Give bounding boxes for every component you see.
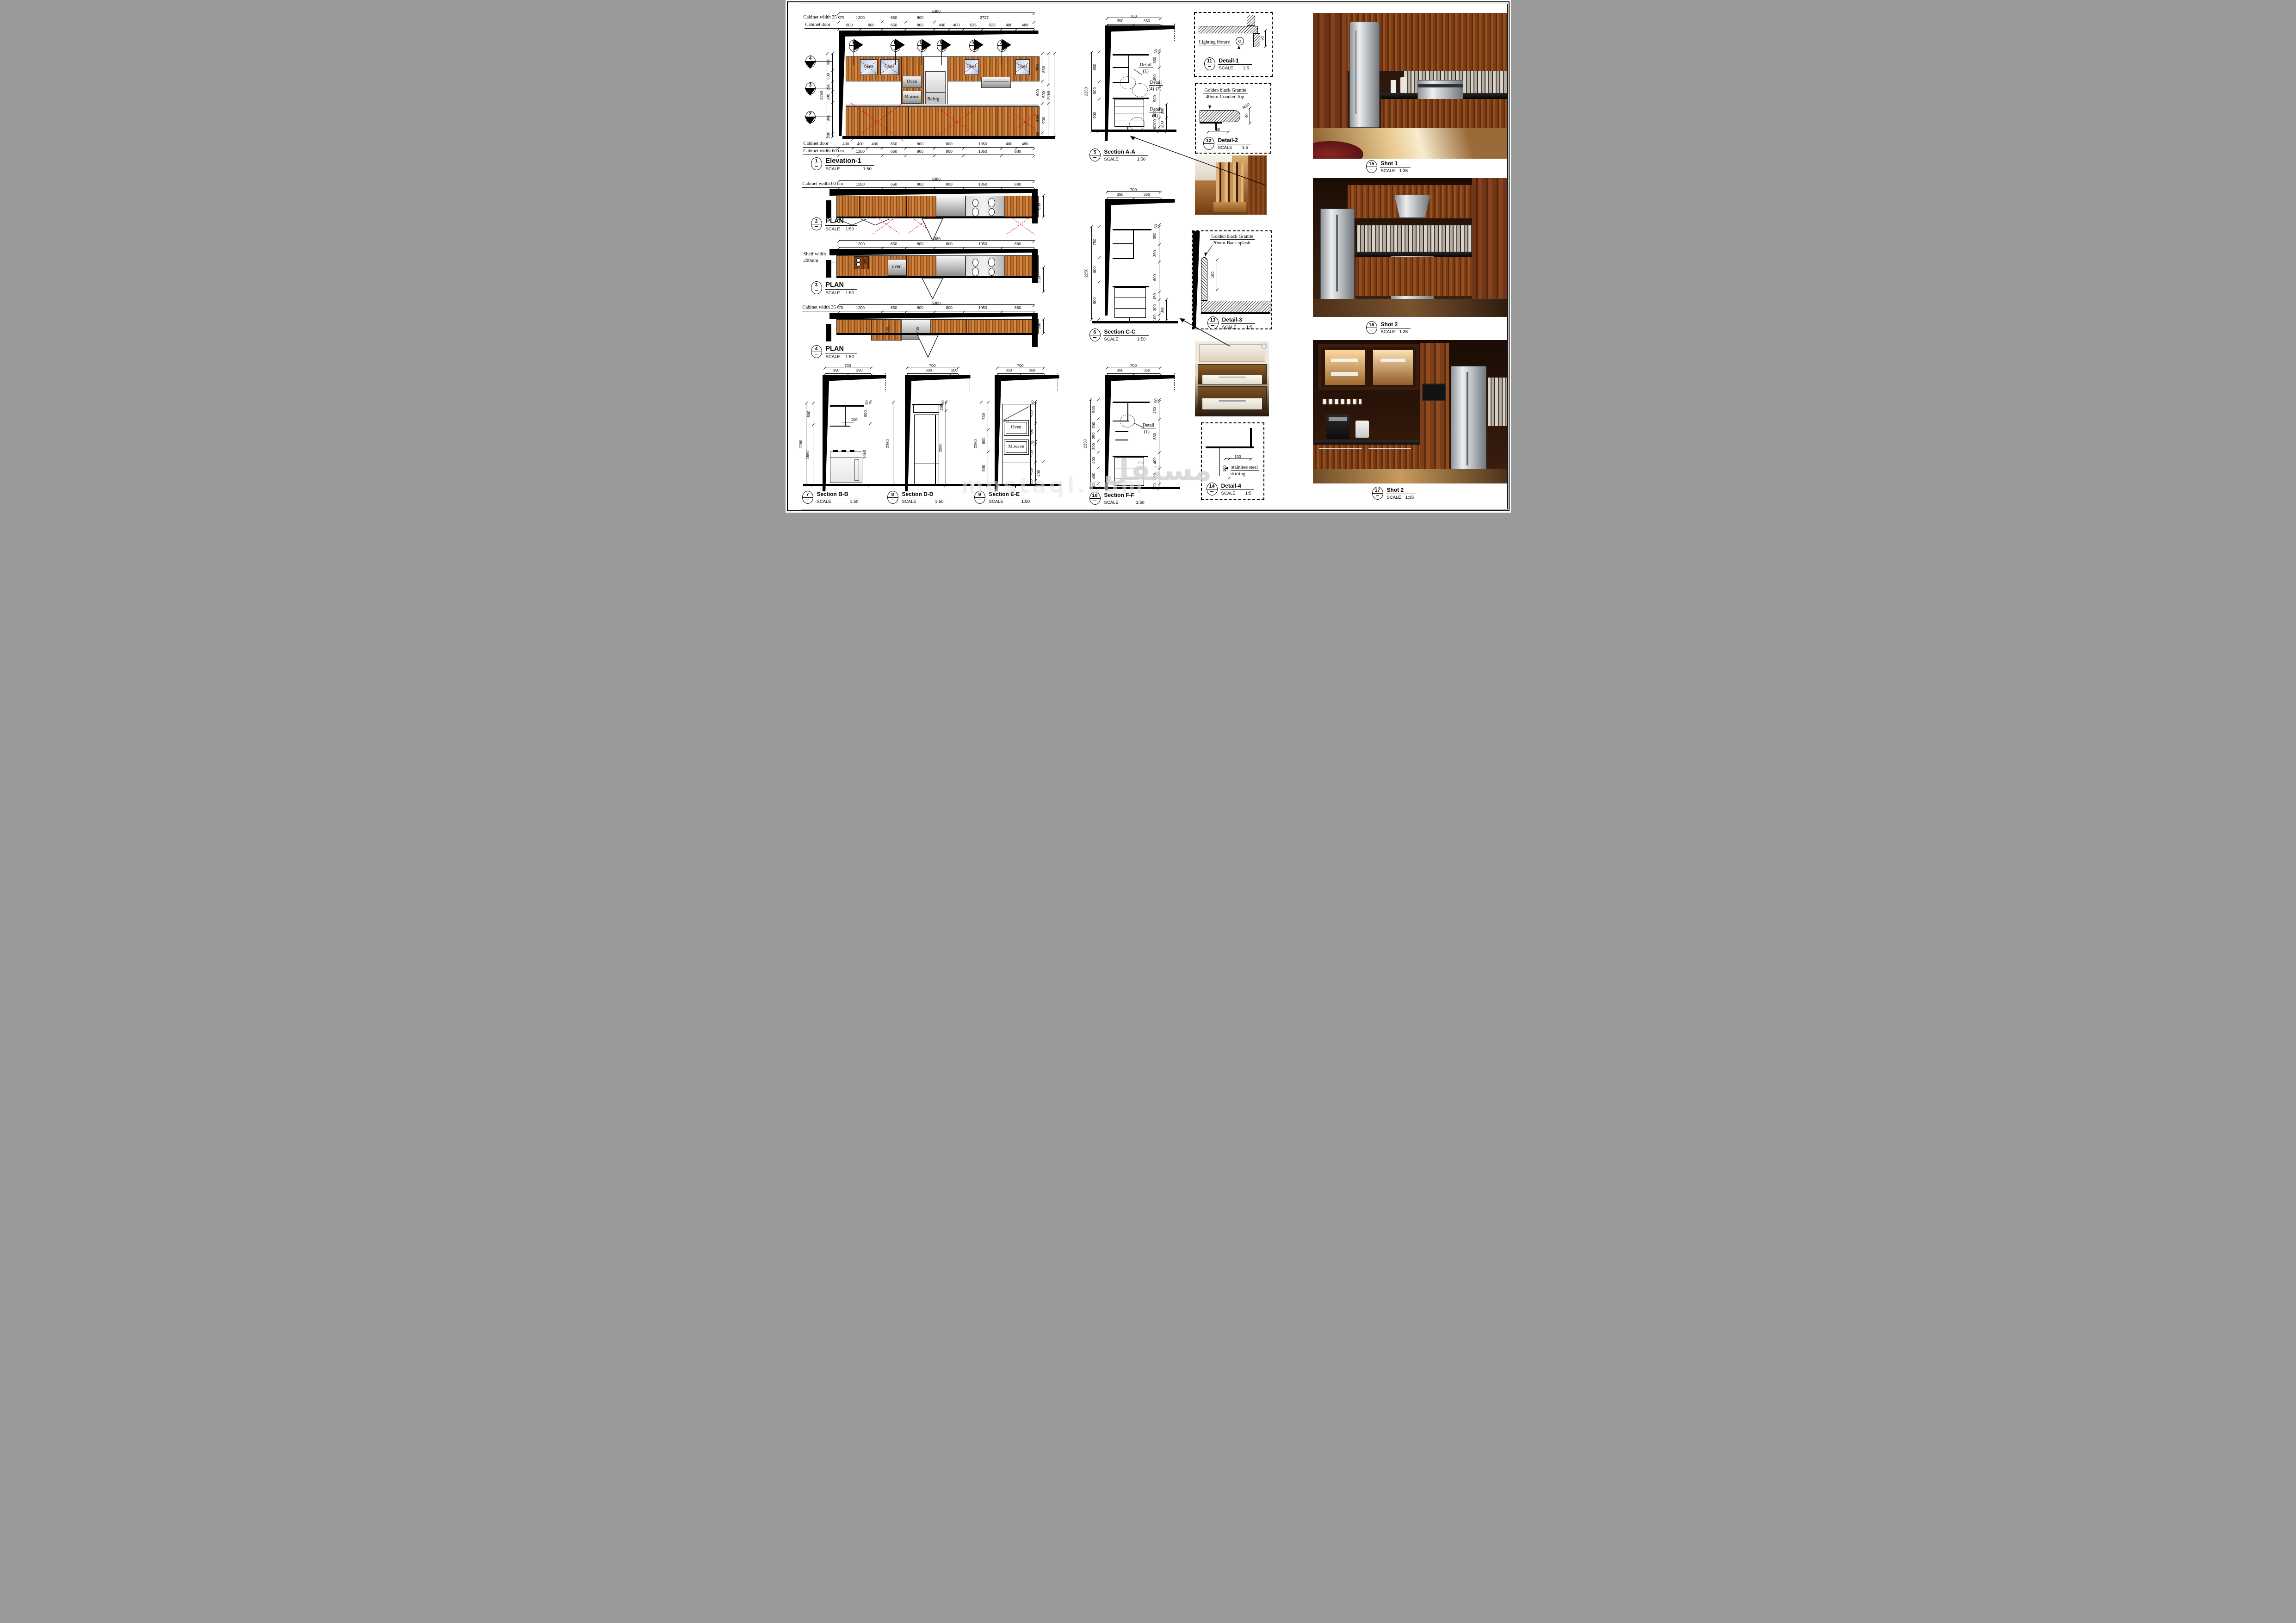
plan2-fridge [936,196,965,217]
floor [1313,469,1507,483]
shot3-title: 17 Shot 2 SCALE1:35 [1372,487,1417,500]
plan2-title: 2 PLAN SCALE1:50 [811,217,857,232]
detail-2: Golden black Granite 40mm-Counter Top R1… [1195,83,1271,154]
dim-value: 350 [1021,367,1044,374]
plan3-right-dim: 338 [1043,267,1044,291]
dim-value: 850 [1099,52,1099,82]
CC-upper-post [1133,230,1134,259]
DD-floor [887,484,972,486]
drawing-title: Elevation-1 [825,157,874,166]
dim-value: 300 [1159,300,1159,316]
CC-title: 6 Section C-C SCALE1:50 [1089,328,1149,342]
bottom-width-label: Cabinet width 60 cm [803,149,839,155]
CC-upper-shelf [1113,229,1151,230]
floor [1313,299,1507,317]
base-cabinets [1355,257,1472,296]
AA-callout1: Detail [1139,62,1153,68]
appliance-tower [1420,343,1449,477]
glass-upper-cabinet [1318,344,1419,390]
elevation-overall-dim: 5380 [839,6,1034,13]
dim-value: 100 [1159,315,1159,320]
dim-value: 650 [882,22,906,29]
dim-value: 800 [906,149,935,155]
base-cabinets [1381,99,1507,130]
dim-value: 650 [882,141,906,148]
dim-value: 400 [1098,468,1098,484]
dim-value: 300 [832,71,833,82]
dim-value: 500 [1159,87,1159,109]
dim-value: 400 [934,22,949,29]
dim-value: 400 [1035,462,1036,480]
title-marker: 12 [1203,137,1214,150]
kettle [1355,421,1369,438]
glass-door-1: Glass [860,59,878,75]
D2-annotation-2: 40mm-Counter Top [1206,94,1244,99]
BB-upper-post [845,406,846,426]
glass-door-2: Glass [880,59,899,75]
plan4-overall-dim: 5380 [839,298,1034,305]
marker-flag-icon [805,61,816,69]
D3-leader [1206,245,1212,254]
section-CC: 700 350350 2250 750600900 50350350600150… [1084,185,1181,345]
title-marker: 4 [811,345,822,358]
dim-value: 250 [832,82,833,91]
EE-wall [995,375,1002,491]
section-marker: C [937,40,947,52]
coffee-machine [1326,415,1349,439]
title-marker: 3 [811,281,822,294]
plan3-shelf: 200 [854,256,869,269]
dim-value: 400 [1035,444,1036,462]
dim-value: 800 [934,181,964,188]
CC-top-dims: 350350 [1107,192,1160,198]
level-marker: 4 [805,56,816,68]
AA-top-total: 700 [1107,12,1160,18]
AA-title: 5 Section A-A SCALE1:50 [1089,149,1149,162]
photo-open-drawer-2 [1198,386,1267,410]
dim-value: 800 [906,305,935,311]
plan2-cooktop [965,196,1005,217]
DD-top-dims: 600100 [907,367,958,374]
FF-top-dims: 350350 [1107,367,1160,374]
dim-value: 100 [1035,480,1036,485]
dim-value: 400 [1002,22,1016,29]
plan4-wall-return [826,324,831,341]
dim-value: 500 [1098,400,1098,419]
dim-value: 800 [906,15,935,21]
dim-value: 1050 [964,305,1002,311]
close-icon[interactable] [1261,343,1267,349]
dim-value: 600 [988,430,988,452]
AA-upper-shelf [1113,54,1149,56]
DD-wall [905,375,912,491]
photo-drawer-front [1213,202,1246,212]
drawing-sheet: 5380 Cabinet width 35 cm 12006508002727 … [786,0,1511,513]
dim-value: 400 [1002,141,1016,148]
AA-shelf [1113,67,1129,68]
plan-3: 5380 12006508008001050880 Shelf width 20… [802,230,1047,298]
D1-beam [1247,15,1255,26]
ceiling-wall [839,31,1039,37]
shot3-photo [1313,340,1507,483]
BB-shelf [830,426,850,427]
drawing-title: PLAN [825,217,857,226]
section-BB: 700 350350 100 2250 6001650 505501650 7 … [799,361,887,507]
D4-title: 14 Detail-4 SCALE1:5 [1207,483,1254,496]
shot2-photo [1313,178,1507,317]
plan4-fridge: 600 [901,319,931,340]
D3-backsplash [1201,257,1207,301]
section-DD: 700 600100 2250 502002000 8 Section D-D … [886,361,972,507]
plan4-cabinet-run [836,319,1039,334]
plan4-door-swing [973,335,1000,347]
base-x-mark [1014,109,1038,135]
dim-value: 650 [882,241,906,248]
microwave-front: M.wave [903,91,922,104]
dim-value: 1050 [964,149,1002,155]
backsplash [1488,378,1507,426]
CC-base-cabinet [1114,287,1146,318]
FF-shelf [1115,431,1128,432]
drawing-title: Detail-2 [1217,137,1251,144]
D4-annotation-2: skirting [1231,471,1245,477]
section-EE: 700 350350 Oven M.wave 2250 750600900 50… [974,361,1060,507]
dim-value: 550 [870,403,870,424]
dim-value: 800 [906,22,935,29]
dim-value: 1200 [839,305,882,311]
AA-top-dims: 350350 [1107,18,1160,25]
mugs-row [1323,399,1362,404]
bottom-door-label: Cabinet door [803,141,839,148]
EE-grid-line [1058,373,1058,390]
CC-shelf [1113,258,1134,259]
title-marker: 13 [1207,316,1219,329]
D3-counter [1201,301,1270,313]
CC-top-total: 700 [1107,185,1160,192]
dim-value: 350 [1107,367,1134,374]
plan2-width-dims: 12006508008001050880 [839,181,1034,188]
floor-line [842,136,1055,139]
dim-value: 800 [934,149,964,155]
FF-ceiling [1105,375,1175,381]
D2-annotation-1: Golden black Granite [1203,88,1248,93]
CC-leg [1129,318,1131,321]
dim-value: 850 [1159,420,1159,453]
plan3-overall-dim: 5380 [839,234,1034,241]
title-marker: 14 [1207,483,1218,496]
title-marker: 15 [1366,160,1377,173]
plan3-wall-return [826,260,831,278]
dim-value: 300 [1098,419,1098,431]
DD-soffit [913,405,939,413]
dim-value: 500 [1099,82,1099,99]
drawing-title: Detail-1 [1218,57,1252,65]
AA-left-total: 2250 [1091,52,1092,131]
dim-value: 600 [907,367,951,374]
plan3-title: 3 PLAN SCALE1:50 [811,281,857,296]
elev-right-total: 2250 [1054,54,1054,137]
bottom-width-dims: 12006508008001050880 [839,149,1034,155]
D4-height-dim: 100 [1229,459,1229,478]
plan2-width-label: Cabinet width 60 cm [802,181,839,188]
plan3-width-dims: 12006508008001050880 [839,241,1034,248]
dim-value: 1200 [839,241,882,248]
fridge [1320,209,1354,301]
dim-value: 1650 [813,425,813,485]
dim-value: 350 [825,367,848,374]
BB-floor [803,484,887,486]
D2-thickness: 40 [1250,108,1250,123]
detail-4: 100 100 stainless steel skirting 14 Deta… [1201,422,1264,500]
plan-2: 5380 Cabinet width 60 cm 120065080080010… [802,173,1047,231]
dim-value: 400 [853,141,867,148]
dim-value: 350 [1159,227,1159,245]
dim-value: 1650 [870,424,870,485]
plan4-door-swing [954,335,971,347]
DD-title: 8 Section D-D SCALE1:50 [887,491,947,504]
glass-door-3: Glass [965,59,979,75]
FF-grid-line [1174,373,1175,390]
plan4-width-dims: 12006508008001050880 [839,305,1034,311]
drawing-title: Detail-4 [1220,483,1254,490]
dim-value: 880 [1002,305,1034,311]
FF-left-total: 2250 [1090,400,1091,488]
BB-title: 7 Section B-B SCALE1:50 [802,491,861,504]
D1-ceiling-slab [1199,26,1258,33]
dim-value: 200 [1166,118,1167,132]
dim-value: 800 [934,305,964,311]
dim-value: 350 [1107,18,1134,25]
plan2-wall-return [826,200,831,218]
dim-value: 1200 [839,181,882,188]
plan4-deep-cabinet: 600 [871,319,902,341]
section-marker: D [917,40,927,52]
FF-upper-shelf [1113,402,1150,403]
photo-cabinet-front [1199,344,1265,362]
cabinet-door-dims: 600600650800400400525525400480 [839,22,1034,29]
D3-annotation-2: 20mm-Back splash [1213,241,1250,246]
dim-value: 250 [1098,431,1098,441]
section-marker: E [891,40,901,52]
D4-cabinet-side [1250,428,1252,448]
fridge [1451,366,1487,476]
plan2-red-x [1005,218,1036,229]
EE-top-total: 700 [997,361,1044,367]
BB-leader [842,422,854,422]
dim-value: 600 [860,22,882,29]
arrow-up-icon [1238,43,1240,49]
dim-value: 800 [934,141,964,148]
fridge [1349,22,1380,128]
plan3-wall [829,249,1038,255]
EE-oven: Oven [1004,420,1029,436]
D4-width-dim: 100 [1225,452,1251,458]
dim-value: 880 [1002,181,1034,188]
plan4-door-swing [1021,335,1036,347]
dim-value: 800 [934,241,964,248]
level-marker: 3 [805,82,816,94]
dim-value: 1050 [964,141,1002,148]
dim-value: 350 [997,367,1021,374]
dim-value: 400 [867,141,882,148]
plan3-fridge [936,255,965,276]
drawing-title: PLAN [825,345,857,353]
backsplash [1357,225,1472,252]
plan4-front-line [836,333,1038,335]
dim-value: 300 [832,92,833,103]
marker-flag-icon [805,117,816,124]
plan2-wall [829,189,1038,196]
photo-door [1248,155,1266,215]
section-FF: 700 350350 Detail (1) 2250 5003002503004… [1084,361,1181,507]
dim-value: 400 [839,141,853,148]
AA-grid-line [1174,24,1175,41]
title-marker: 7 [802,491,813,504]
FF-floor [1089,487,1180,489]
dim-value: 480 [1016,22,1034,29]
AA-floor [1092,130,1176,132]
cabinet-width-35-label: Cabinet width 35 cm [803,15,839,21]
AA-detail-circle [1132,83,1148,97]
EE-ceiling [995,375,1059,381]
dim-value: 750 [1099,227,1099,258]
D3-wall [1193,231,1200,328]
section-marker: B [969,40,979,52]
dim-value: 400 [949,22,964,29]
title-marker: 17 [1372,487,1383,500]
plan3-oven: oven [888,259,906,276]
dim-value: 650 [882,305,906,311]
dim-value: 650 [882,149,906,155]
D4-skirting [1219,448,1222,476]
EE-microwave: M.wave [1004,440,1029,455]
jar [1400,77,1407,93]
dim-value: 525 [964,22,983,29]
base-cabinets [1313,445,1420,472]
range-hood [981,77,1011,88]
dim-value: 2727 [934,15,1034,21]
dim-value: 350 [1166,300,1167,320]
elevation-1: 5380 Cabinet width 35 cm 12006508002727 … [802,4,1047,173]
D3-title: 13 Detail-3 SCALE1:5 [1207,316,1255,330]
dim-value: 750 [988,403,988,430]
dim-value: 400 [1159,469,1159,484]
dim-value: 600 [1159,262,1159,292]
dim-value: 100 [951,367,958,374]
EE-top-dims: 350350 [997,367,1044,374]
pantry-cabinet [1472,178,1507,306]
dim-value: 900 [1048,104,1048,137]
dim-value: 200 [1159,110,1159,118]
dim-value: 200 [1159,118,1159,127]
title-marker: 2 [811,217,822,230]
drawing-title: Section B-B [816,491,861,498]
CC-wall [1105,199,1112,316]
drawing-title: Detail-3 [1221,316,1255,324]
photo-rack [1216,162,1244,204]
jar [1391,80,1397,93]
drawing-title: Shot 2 [1380,321,1411,328]
BB-cooker [830,452,862,483]
AA-leader [1133,69,1142,75]
D2-overhang: 50 [1208,125,1228,131]
D2-counter-slab [1200,110,1240,122]
BB-upper-shelf [830,405,864,407]
CC-ceiling [1105,199,1175,205]
dim-value: 300 [1098,441,1098,452]
title-marker: 9 [974,491,985,504]
pullout-cabinet-photo [1195,155,1267,215]
plan2-red-x [907,218,935,229]
dim-value: 900 [1099,99,1099,131]
dim-value: 850 [1048,54,1048,85]
CC-shelf [1113,243,1133,244]
drawing-title: Section C-C [1103,328,1149,336]
D3-annotation-1: Golden black Granite [1210,234,1255,240]
plan4-depth-dim: 350 [1043,319,1044,333]
title-marker: 1 [811,157,822,170]
dim-value: 350 [1159,245,1159,262]
CC-left-total: 2250 [1091,227,1092,319]
shot1-title: 15 Shot 1 SCALE1:35 [1366,160,1411,173]
BB-top-dims: 350350 [825,367,871,374]
oven-front: Oven [903,76,922,88]
drawing-title: Shot 1 [1380,160,1411,167]
arrow-left-icon [1222,467,1228,470]
title-marker: 10 [1089,492,1101,505]
dim-value: 650 [882,15,906,21]
dim-value: 400 [1159,453,1159,469]
plan4-width-label: Cabinet width 35 cm [802,305,839,311]
drawing-title: Section E-E [988,491,1033,498]
DD-fridge-cabinet [914,415,939,485]
dim-value: 2000 [946,411,946,485]
dim-value: 100 [1042,133,1042,137]
title-marker: 16 [1366,321,1377,334]
dim-value: 800 [906,241,935,248]
drawing-title: Section A-A [1103,149,1149,156]
dim-value: 100 [1159,484,1159,489]
D1-annotation: Lighting fixture [1198,40,1232,45]
plan2-depth-dim: 600 [1043,196,1044,217]
dim-value: 350 [1133,192,1160,198]
dim-value: 600 [813,403,813,425]
cabinet-door-label: Cabinet door [805,22,839,29]
plan3-front-line [836,276,1038,278]
dim-value: 430 [1035,404,1036,423]
FF-title: 10 Section F-F SCALE1:50 [1089,492,1147,505]
title-marker: 11 [1204,57,1215,70]
dim-value: 800 [906,181,935,188]
dim-value: 480 [1016,141,1034,148]
dim-value: 600 [1099,258,1099,282]
BB-top-total: 700 [825,361,871,367]
D1-title: 11 Detail-1 SCALE1:5 [1204,57,1252,71]
dim-value: 1050 [964,181,1002,188]
dim-value: 450 [832,54,833,71]
drawing-title: Section D-D [901,491,947,498]
AA-ceiling [1105,25,1175,32]
base-x-mark [848,109,906,135]
bottom-door-dims: 4004004006508008001050400480 [839,141,1034,148]
plan2-overall-dim: 5380 [839,174,1034,181]
AA-wall [1105,25,1112,141]
level-marker: 2 [805,111,816,123]
D4-cabinet-bottom [1206,428,1254,448]
FF-shelf [1115,440,1128,440]
shelf-note-1: Shelf width [802,252,828,257]
drawing-title: PLAN [825,281,857,290]
